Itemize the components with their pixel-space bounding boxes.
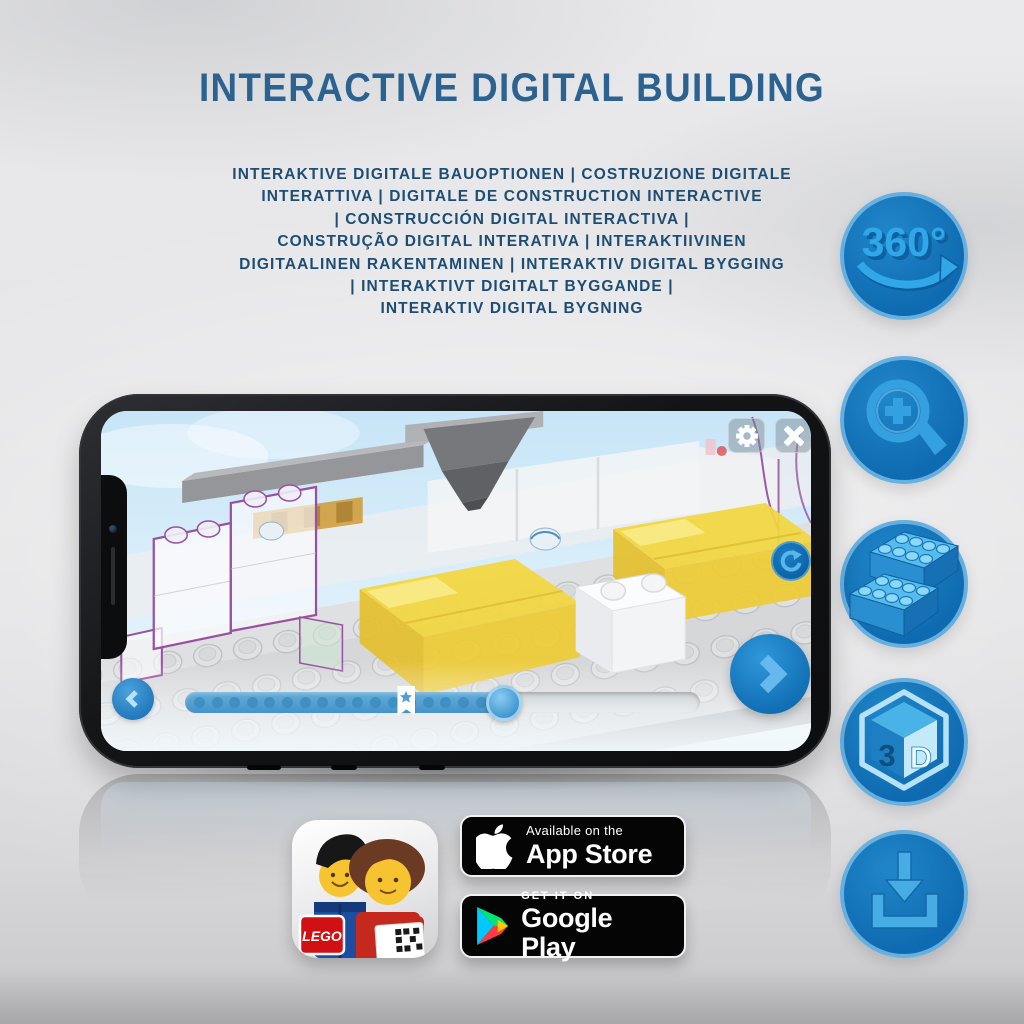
3d-view-icon: 3 D [846, 684, 962, 800]
subtitle-line: INTERATTIVA | DIGITALE DE CONSTRUCTION I… [152, 186, 872, 208]
front-camera [109, 525, 117, 533]
lego-app-icon[interactable]: LEGO [292, 820, 438, 958]
download-icon [846, 836, 962, 952]
phone-mockup [79, 394, 831, 768]
progress-dot [476, 697, 487, 708]
phone-notch [101, 475, 127, 659]
svg-text:3: 3 [878, 738, 895, 773]
feature-badge-360: ​ 360° 360° [840, 192, 968, 320]
app-store-tagline: Available on the [526, 824, 652, 838]
build-progress-bar[interactable] [185, 692, 700, 713]
subtitle-line: DIGITAALINEN RAKENTAMINEN | INTERAKTIV D… [152, 254, 872, 276]
progress-dot [335, 697, 346, 708]
google-play-name: Google Play [521, 904, 670, 961]
subtitle-line: | INTERAKTIVT DIGITALT BYGGANDE | [152, 276, 872, 298]
chevron-right-icon [742, 646, 798, 702]
reset-rotation-button[interactable] [771, 541, 811, 581]
zoom-in-icon [846, 362, 962, 478]
progress-dot [388, 697, 399, 708]
apple-icon [476, 823, 514, 869]
svg-text:D: D [910, 740, 932, 775]
rotate-360-icon: ​ 360° 360° [846, 198, 962, 314]
close-icon [782, 424, 806, 448]
star-icon [400, 691, 412, 703]
subtitle-line: | CONSTRUCCIÓN DIGITAL INTERACTIVA | [152, 209, 872, 231]
app-screen [101, 411, 811, 751]
subtitle-line: INTERAKTIV DIGITAL BYGNING [152, 298, 872, 320]
feature-badge-download [840, 830, 968, 958]
next-step-button[interactable] [730, 634, 810, 714]
brick-options-icon [846, 526, 962, 642]
chevron-left-icon [121, 687, 145, 711]
feature-badge-3d: 3 D [840, 678, 968, 806]
app-store-name: App Store [526, 840, 652, 868]
feature-badge-zoom [840, 356, 968, 484]
svg-text:360°: 360° [862, 219, 947, 265]
progress-dot [370, 697, 381, 708]
progress-dot [247, 697, 258, 708]
subtitle: INTERAKTIVE DIGITALE BAUOPTIONEN | COSTR… [152, 164, 872, 321]
progress-dot [282, 697, 293, 708]
app-store-badge[interactable]: Available on the App Store [460, 815, 686, 877]
subtitle-line: CONSTRUÇÃO DIGITAL INTERATIVA | INTERAKT… [152, 231, 872, 253]
settings-button[interactable] [728, 418, 765, 453]
phone-reflection [79, 774, 831, 924]
progress-dot [423, 697, 434, 708]
floor-shadow [0, 968, 1024, 1024]
progress-dot [300, 697, 311, 708]
page-title: INTERACTIVE DIGITAL BUILDING [41, 66, 983, 111]
close-button[interactable] [775, 418, 811, 453]
google-play-badge[interactable]: GET IT ON Google Play [460, 894, 686, 958]
progress-thumb[interactable] [486, 685, 522, 721]
progress-dot [212, 697, 223, 708]
google-play-icon [476, 907, 509, 945]
svg-text:LEGO: LEGO [302, 928, 342, 944]
speaker-slit [111, 547, 115, 605]
progress-dot [194, 697, 205, 708]
previous-step-button[interactable] [112, 678, 154, 720]
gear-icon [735, 424, 759, 448]
feature-badge-bricks [840, 520, 968, 648]
subtitle-line: INTERAKTIVE DIGITALE BAUOPTIONEN | COSTR… [152, 164, 872, 186]
refresh-icon [778, 548, 804, 574]
page: INTERACTIVE DIGITAL BUILDING INTERAKTIVE… [0, 0, 1024, 1024]
progress-dot [458, 697, 469, 708]
lego-app-art: LEGO [292, 820, 438, 958]
google-play-tagline: GET IT ON [521, 891, 670, 903]
